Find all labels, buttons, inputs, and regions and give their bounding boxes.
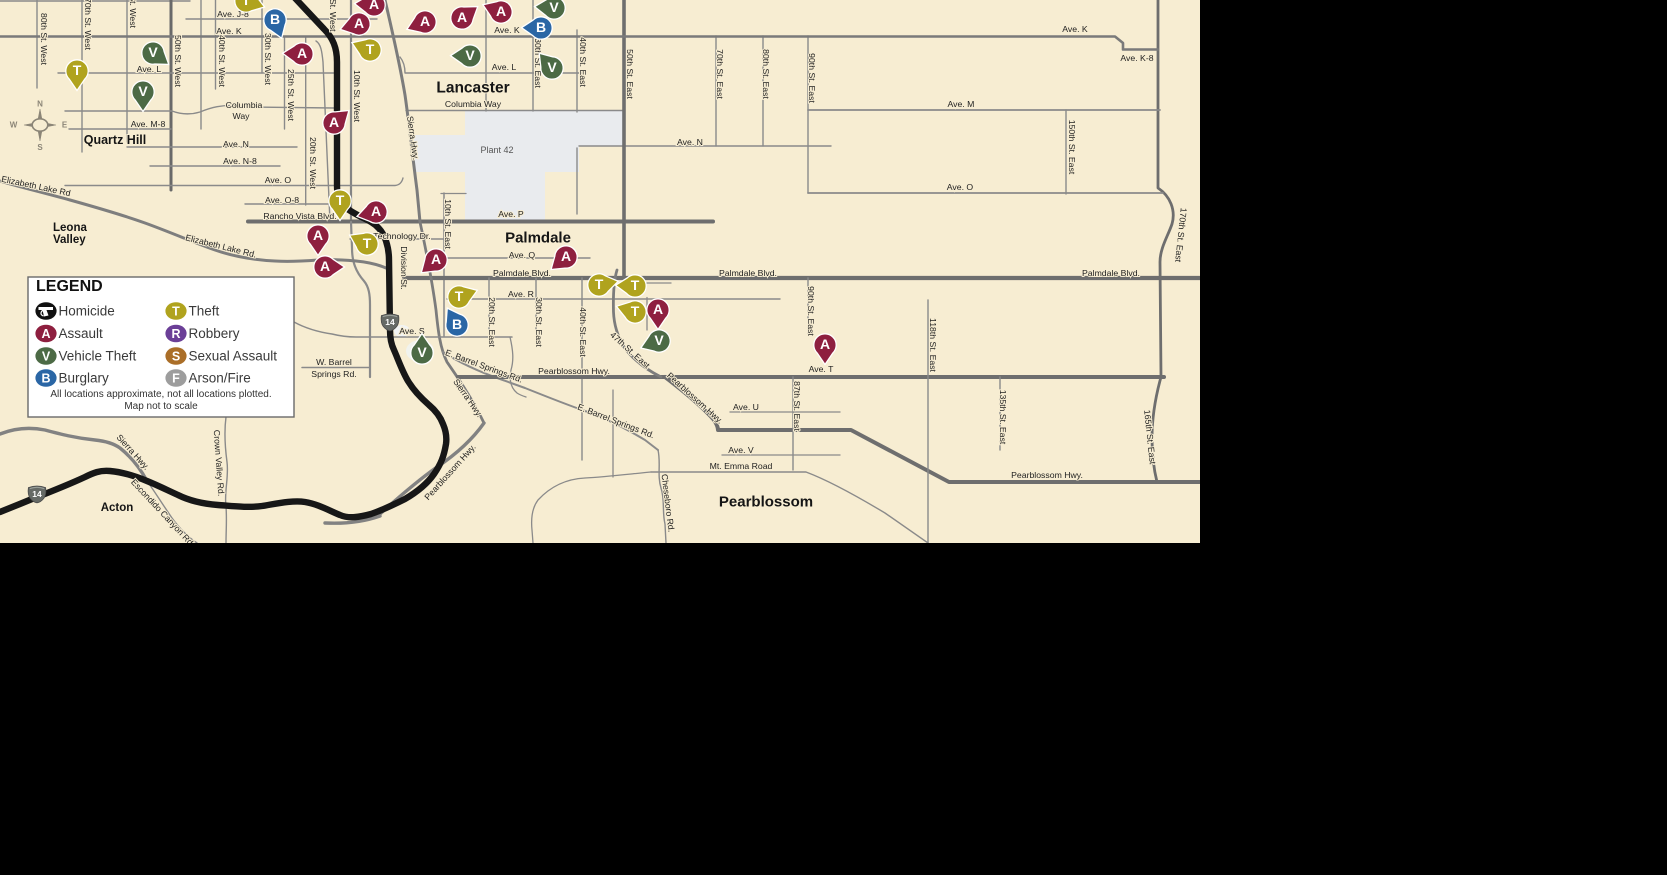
svg-text:Arson/Fire: Arson/Fire	[189, 371, 251, 386]
svg-text:A: A	[41, 327, 50, 341]
svg-text:Leona: Leona	[53, 222, 87, 234]
svg-text:Sexual Assault: Sexual Assault	[189, 349, 278, 364]
svg-text:A: A	[313, 227, 323, 243]
svg-text:Vehicle Theft: Vehicle Theft	[59, 349, 137, 364]
svg-text:T: T	[363, 235, 372, 251]
svg-text:Ave. N-8: Ave. N-8	[223, 156, 257, 166]
svg-text:5th St. West: 5th St. West	[328, 0, 338, 32]
svg-text:Division St.: Division St.	[399, 246, 409, 289]
svg-text:Ave. M: Ave. M	[948, 99, 975, 109]
svg-text:Columbia Way: Columbia Way	[445, 99, 502, 109]
svg-text:V: V	[549, 0, 559, 15]
svg-text:T: T	[242, 0, 251, 8]
svg-text:Plant 42: Plant 42	[480, 145, 513, 155]
svg-text:A: A	[561, 248, 571, 264]
svg-text:W: W	[10, 121, 18, 130]
svg-text:70th St. East: 70th St. East	[715, 49, 725, 99]
svg-text:V: V	[148, 44, 158, 60]
svg-text:90th St. East: 90th St. East	[806, 286, 816, 336]
svg-text:Palmdale Blvd.: Palmdale Blvd.	[719, 268, 777, 278]
svg-text:A: A	[320, 258, 330, 274]
svg-text:Ave. K-8: Ave. K-8	[1120, 53, 1153, 63]
svg-text:Ave. K: Ave. K	[1062, 24, 1088, 34]
svg-text:Technology Dr.: Technology Dr.	[373, 231, 430, 241]
svg-text:A: A	[329, 114, 339, 130]
svg-text:25th St. West: 25th St. West	[286, 69, 296, 122]
svg-text:40th St. East: 40th St. East	[578, 37, 588, 87]
svg-text:Valley: Valley	[53, 234, 86, 246]
svg-text:50th St. East: 50th St. East	[625, 49, 635, 99]
svg-text:90th St. East: 90th St. East	[807, 53, 817, 103]
svg-text:80th St. West: 80th St. West	[39, 13, 49, 66]
svg-text:Ave. M-8: Ave. M-8	[131, 119, 166, 129]
svg-text:S: S	[37, 143, 43, 152]
svg-text:V: V	[138, 83, 148, 99]
svg-text:Columbia: Columbia	[226, 100, 263, 110]
svg-text:Ave. P: Ave. P	[498, 209, 524, 219]
svg-text:A: A	[457, 9, 467, 25]
svg-text:T: T	[595, 276, 604, 292]
svg-text:14: 14	[385, 317, 395, 327]
svg-text:A: A	[297, 45, 307, 61]
svg-text:Theft: Theft	[189, 304, 220, 319]
svg-text:30th St. West: 30th St. West	[263, 33, 273, 86]
svg-text:V: V	[547, 59, 557, 75]
svg-text:A: A	[496, 3, 506, 19]
svg-text:A: A	[354, 15, 364, 31]
svg-text:Ave. L: Ave. L	[137, 64, 162, 74]
svg-text:Ave. T: Ave. T	[809, 364, 834, 374]
svg-text:14: 14	[32, 489, 42, 499]
svg-text:70th St. West: 70th St. West	[83, 0, 93, 51]
svg-text:B: B	[270, 11, 280, 27]
svg-text:Assault: Assault	[59, 326, 104, 341]
svg-text:Ave. R: Ave. R	[508, 289, 534, 299]
svg-text:Springs Rd.: Springs Rd.	[311, 369, 356, 379]
svg-text:Robbery: Robbery	[189, 326, 240, 341]
svg-text:40th St. East: 40th St. East	[578, 307, 588, 357]
svg-text:Pearblossom Hwy.: Pearblossom Hwy.	[1011, 470, 1083, 480]
svg-text:V: V	[42, 350, 51, 364]
svg-text:W. Barrel: W. Barrel	[316, 357, 352, 367]
svg-text:Mt. Emma Road: Mt. Emma Road	[710, 461, 773, 471]
svg-text:T: T	[73, 62, 82, 78]
svg-text:30th St. East: 30th St. East	[534, 297, 544, 347]
svg-text:Rancho Vista Blvd.: Rancho Vista Blvd.	[263, 211, 336, 221]
svg-text:Ave. U: Ave. U	[733, 402, 759, 412]
svg-text:T: T	[336, 192, 345, 208]
svg-text:A: A	[369, 0, 379, 12]
svg-text:Way: Way	[232, 111, 250, 121]
svg-text:A: A	[431, 251, 441, 267]
svg-text:135th St. East: 135th St. East	[998, 390, 1008, 445]
svg-text:A: A	[371, 203, 381, 219]
svg-text:T: T	[172, 305, 180, 319]
svg-text:Palmdale: Palmdale	[505, 230, 571, 247]
svg-text:60th St. West: 60th St. West	[128, 0, 138, 29]
svg-text:Acton: Acton	[101, 502, 134, 514]
svg-text:E: E	[62, 121, 68, 130]
svg-text:B: B	[41, 372, 50, 386]
svg-text:Quartz Hill: Quartz Hill	[84, 133, 147, 147]
svg-text:Ave. O-8: Ave. O-8	[265, 195, 299, 205]
svg-text:Homicide: Homicide	[59, 304, 115, 319]
svg-text:T: T	[631, 277, 640, 293]
svg-text:118th St. East: 118th St. East	[928, 318, 938, 373]
svg-text:T: T	[455, 288, 464, 304]
svg-text:10th St. East: 10th St. East	[443, 199, 453, 249]
svg-text:A: A	[420, 13, 430, 29]
svg-text:LEGEND: LEGEND	[36, 278, 103, 295]
svg-text:A: A	[820, 336, 830, 352]
svg-text:40th St. West: 40th St. West	[217, 35, 227, 88]
svg-text:B: B	[452, 316, 462, 332]
svg-text:All locations approximate, not: All locations approximate, not all locat…	[50, 389, 271, 400]
svg-text:20th St. West: 20th St. West	[308, 137, 318, 190]
svg-text:A: A	[653, 301, 663, 317]
svg-text:Lancaster: Lancaster	[436, 80, 509, 97]
svg-text:F: F	[172, 372, 180, 386]
svg-text:Palmdale Blvd.: Palmdale Blvd.	[1082, 268, 1140, 278]
svg-text:87th St. East: 87th St. East	[792, 381, 802, 431]
svg-text:T: T	[631, 303, 640, 319]
svg-text:Ave. O: Ave. O	[265, 175, 292, 185]
svg-text:S: S	[172, 350, 180, 364]
svg-text:150th St. East: 150th St. East	[1067, 120, 1077, 175]
svg-text:Map not to scale: Map not to scale	[124, 401, 198, 412]
svg-text:Ave. V: Ave. V	[728, 445, 754, 455]
svg-text:Pearblossom: Pearblossom	[719, 494, 813, 511]
svg-text:V: V	[465, 47, 475, 63]
svg-text:Pearblossom Hwy.: Pearblossom Hwy.	[538, 366, 610, 376]
svg-text:Ave. Q: Ave. Q	[509, 250, 536, 260]
svg-text:N: N	[37, 100, 43, 109]
svg-text:Burglary: Burglary	[59, 371, 110, 386]
svg-text:Ave. L: Ave. L	[492, 62, 517, 72]
svg-text:20th St. East: 20th St. East	[487, 297, 497, 347]
svg-text:50th St. West: 50th St. West	[173, 35, 183, 88]
svg-text:B: B	[536, 19, 546, 35]
svg-text:Ave. O: Ave. O	[947, 182, 974, 192]
svg-text:Palmdale Blvd.: Palmdale Blvd.	[493, 268, 551, 278]
svg-text:Ave. K: Ave. K	[494, 25, 520, 35]
svg-text:V: V	[654, 332, 664, 348]
svg-text:Ave. K: Ave. K	[216, 26, 242, 36]
svg-text:10th St. West: 10th St. West	[352, 70, 362, 123]
svg-text:Ave. N: Ave. N	[677, 137, 703, 147]
svg-text:T: T	[366, 41, 375, 57]
svg-text:R: R	[171, 327, 180, 341]
svg-text:Ave. N: Ave. N	[223, 139, 249, 149]
svg-text:V: V	[417, 344, 427, 360]
svg-text:80th St. East: 80th St. East	[761, 49, 771, 99]
